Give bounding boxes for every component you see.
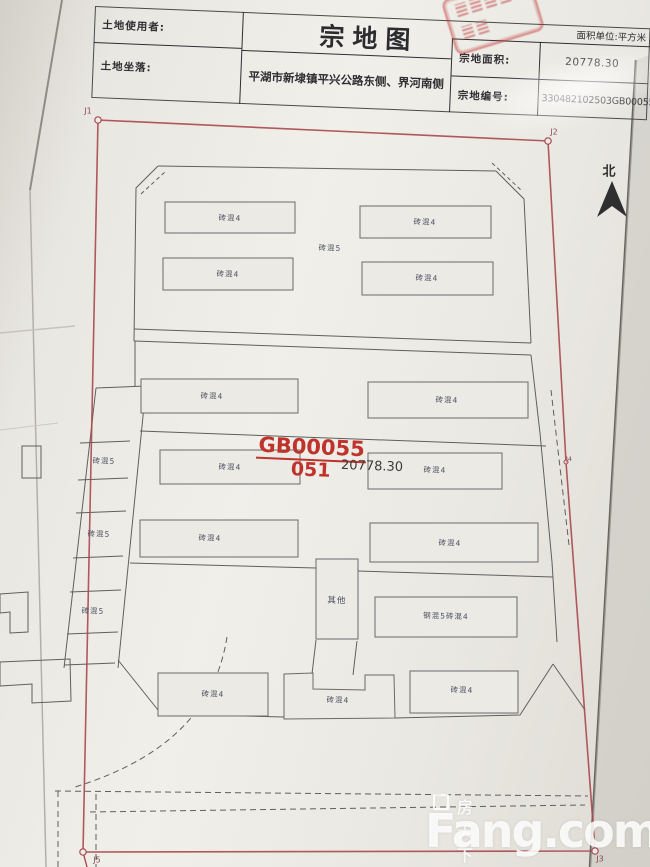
building-label: 砖混4 bbox=[198, 532, 221, 544]
parcel-area-value: 20778.30 bbox=[565, 56, 620, 70]
building-label: 其他 bbox=[327, 594, 346, 606]
building-label: 砖混4 bbox=[326, 694, 349, 706]
land-location-label: 土地坐落: bbox=[100, 58, 152, 75]
parcel-number-label: 宗地编号: bbox=[457, 88, 509, 105]
stamp-glyph-smudge bbox=[475, 19, 489, 35]
building-label: 砖混4 bbox=[218, 461, 241, 473]
red-parcel-boundary bbox=[80, 117, 598, 867]
stamp-glyph-smudge bbox=[497, 0, 511, 4]
north-label: 北 bbox=[602, 161, 615, 180]
building-label: 砖混4 bbox=[438, 537, 461, 549]
land-location-value: 平湖市新埭镇平兴公路东侧、界河南侧 bbox=[241, 52, 451, 110]
building-label: 砖混4 bbox=[216, 268, 239, 280]
watermark-brand-en: Fang.com bbox=[425, 804, 650, 858]
building-label: 砖混5 bbox=[81, 605, 104, 617]
building-label: 砖混4 bbox=[435, 394, 458, 406]
building-label: 砖混5 bbox=[92, 455, 115, 467]
building-label: 砖混5 bbox=[87, 528, 110, 540]
building-label: 砖混4 bbox=[423, 464, 446, 476]
stamp-glyph-smudge bbox=[454, 2, 468, 18]
photographed-parcel-map-document: 土地使用者: 土地坐落: 宗地图 平湖市新埭镇平兴公路东侧、界河南侧 面积单位:… bbox=[0, 0, 650, 867]
land-user-label: 土地使用者: bbox=[102, 17, 165, 35]
building-label: 钢混5砖混4 bbox=[423, 610, 469, 622]
building-label: 砖混4 bbox=[218, 212, 241, 224]
building-label: 砖混5 bbox=[318, 242, 341, 254]
building-label: 砖混4 bbox=[200, 390, 223, 402]
parcel-area-annotation: 20778.30 bbox=[341, 458, 404, 475]
boundary-point-label-j5: J5 bbox=[93, 856, 100, 865]
north-arrow-icon bbox=[597, 181, 627, 217]
building-label: 砖混4 bbox=[450, 684, 473, 696]
stamp-glyph-smudge bbox=[461, 24, 475, 40]
building-label: 砖混4 bbox=[201, 688, 224, 700]
boundary-point-label-j1: J1 bbox=[84, 107, 91, 116]
building-label: 砖混4 bbox=[415, 272, 438, 284]
boundary-point-label-j4: J4 bbox=[566, 455, 572, 463]
boundary-point-label-j2: J2 bbox=[550, 128, 557, 137]
building-label: 砖混4 bbox=[413, 216, 436, 228]
stamp-glyph-smudge bbox=[469, 0, 483, 13]
stamp-glyph-smudge bbox=[483, 0, 497, 9]
